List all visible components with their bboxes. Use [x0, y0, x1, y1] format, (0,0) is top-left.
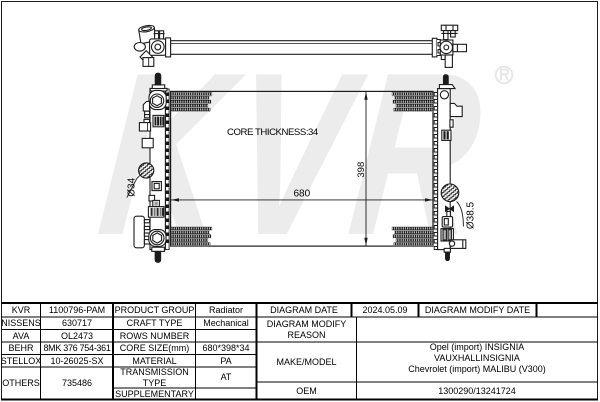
svg-text:Ø38.5: Ø38.5 — [466, 201, 477, 229]
svg-text:CORE THICKNESS:34: CORE THICKNESS:34 — [227, 127, 319, 138]
svg-text:680: 680 — [293, 188, 310, 199]
svg-text:Ø34: Ø34 — [127, 177, 138, 196]
svg-text:398: 398 — [356, 162, 367, 178]
